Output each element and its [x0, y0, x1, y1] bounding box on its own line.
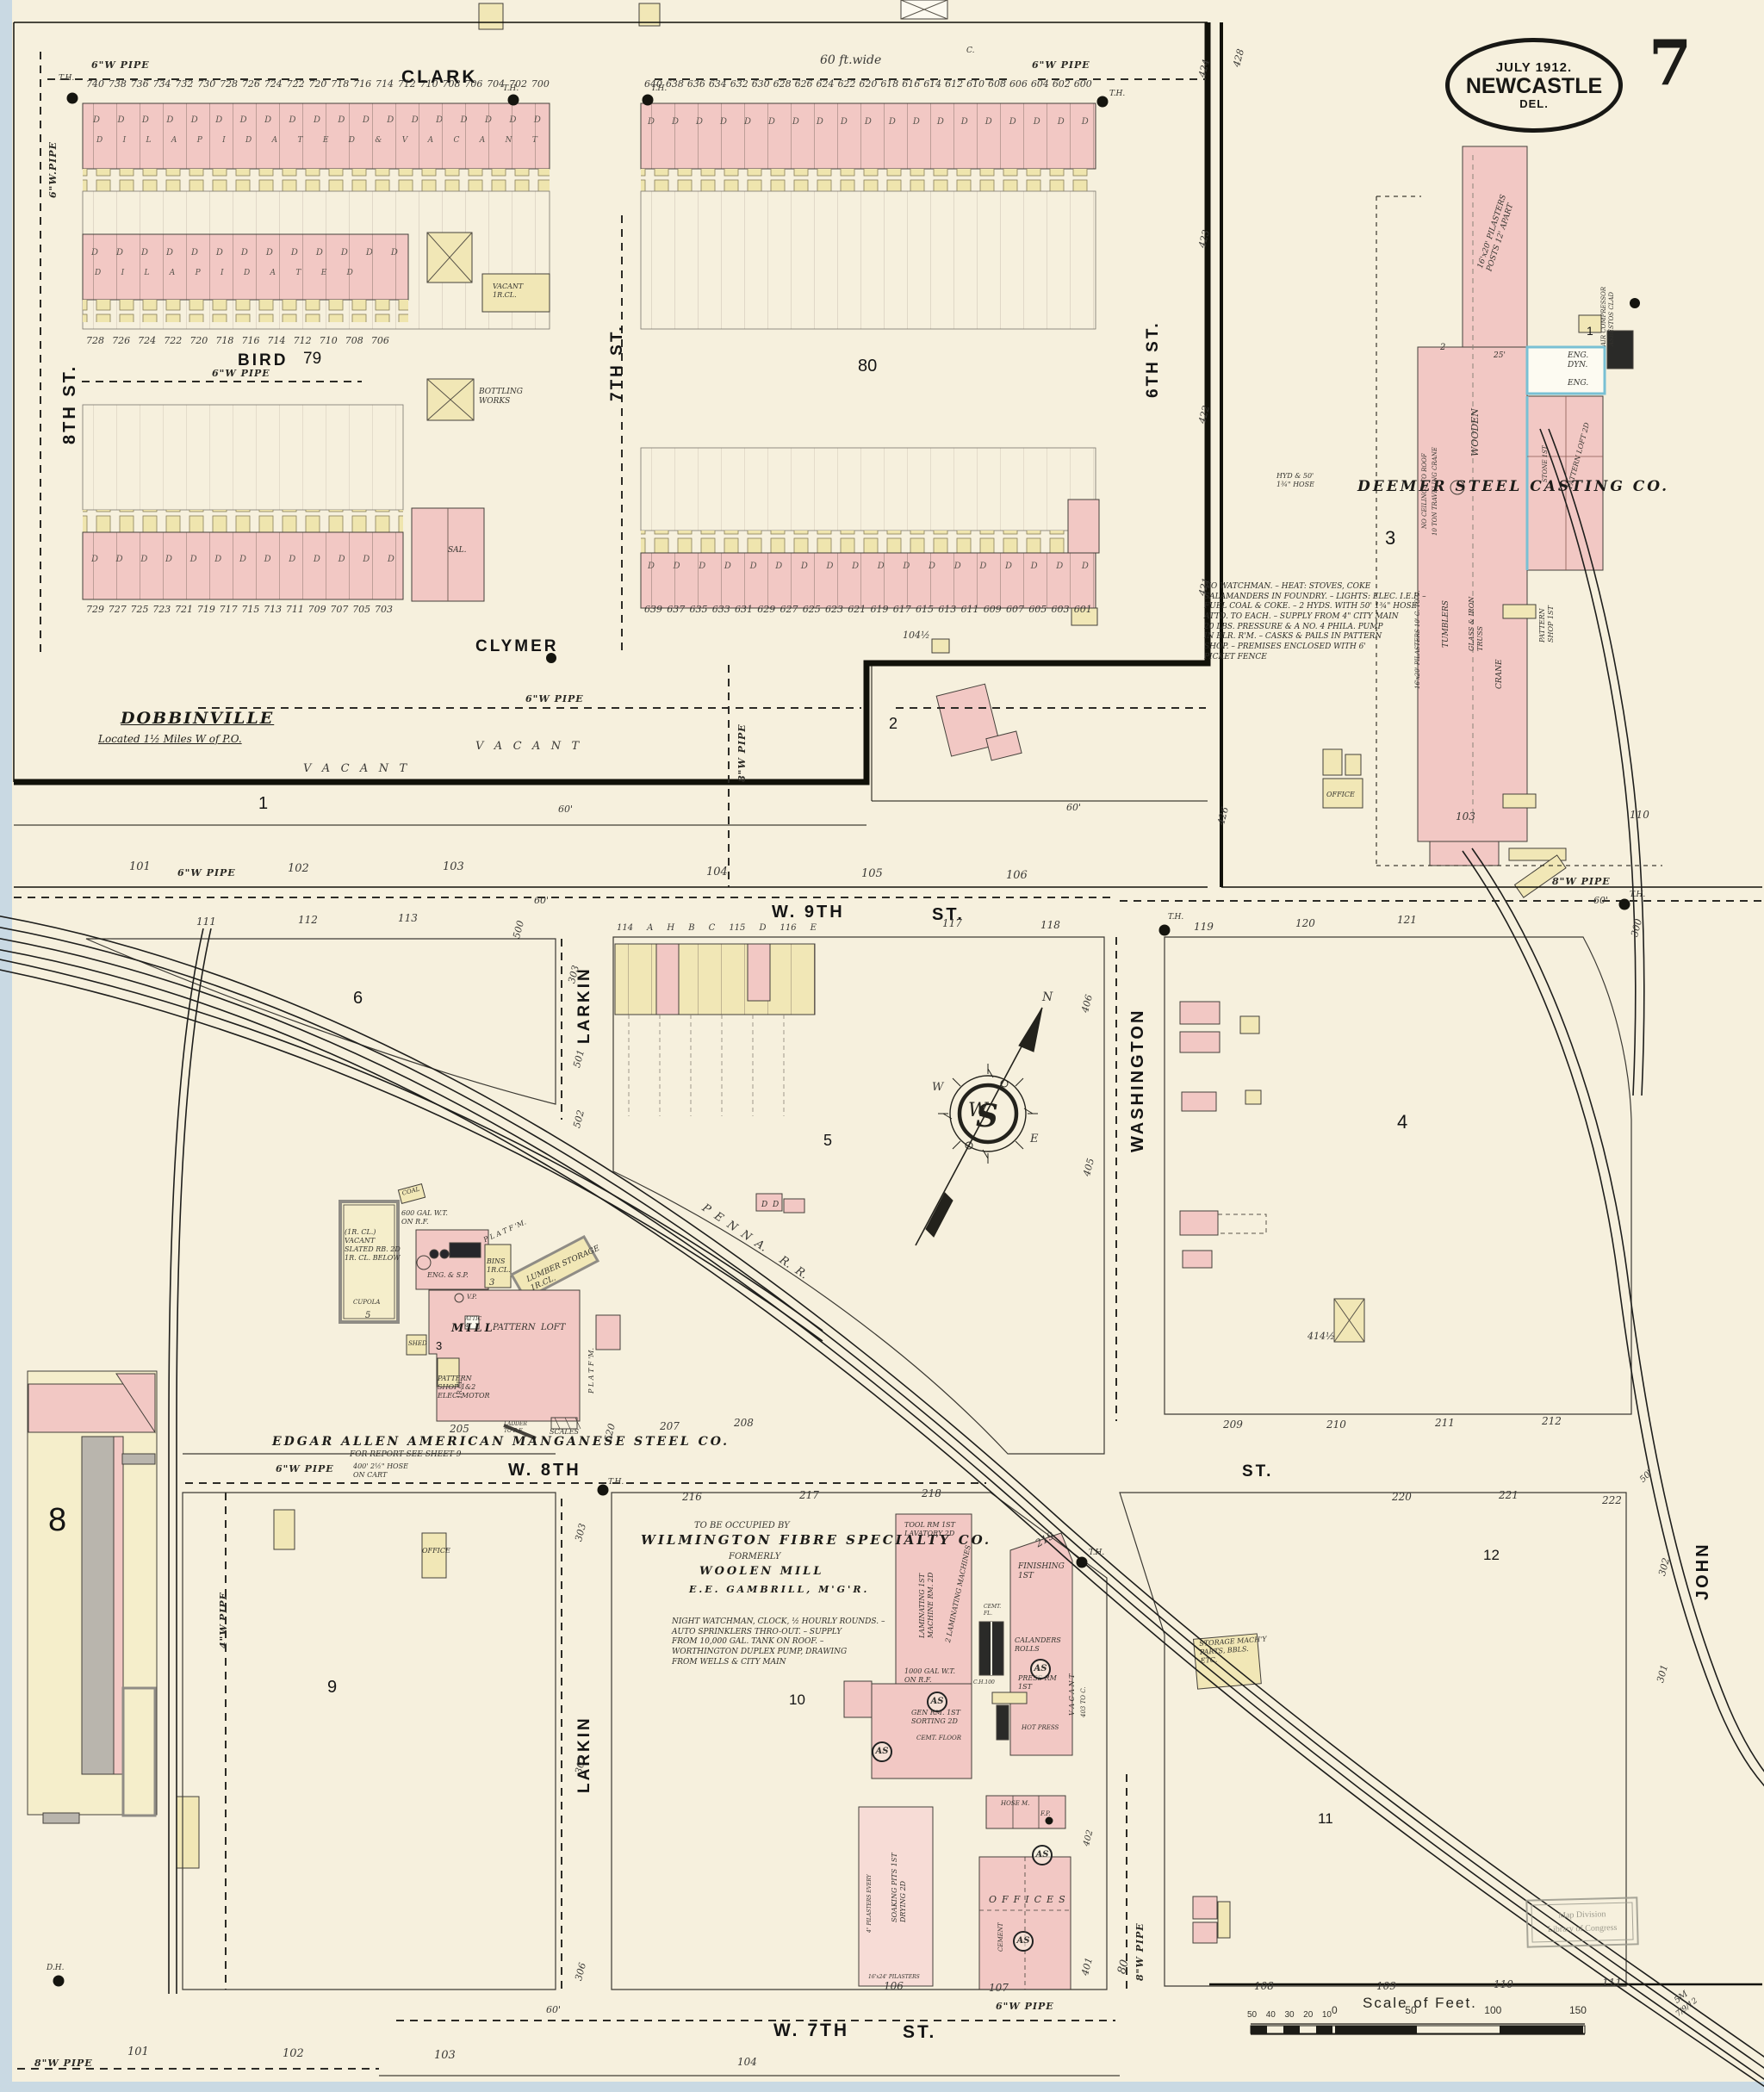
lot-number: A: [170, 269, 176, 277]
lot-number: 601: [1074, 605, 1092, 616]
lot-number: 629: [757, 605, 775, 616]
map-label: OFFICE: [1326, 791, 1355, 799]
lot-number: 726: [112, 336, 130, 347]
auto-sprinkler-badge: AS: [1032, 1845, 1053, 1865]
map-label: 400' 2½" HOSE ON CART: [353, 1462, 408, 1480]
lot-number: D: [817, 117, 823, 127]
street-w7th: W. 7TH: [773, 2021, 849, 2041]
label-layer: CLARK60 ft.wideBIRD7980CLYMER8TH ST.7TH …: [0, 0, 1764, 2092]
lot-number: 738: [109, 79, 127, 90]
lot-number: 50: [1405, 2005, 1416, 2017]
lot-number: D: [140, 555, 147, 565]
lot-number: D: [316, 248, 323, 258]
map-label: 101: [127, 2046, 149, 2059]
lot-number: D: [240, 115, 247, 126]
auto-sprinkler-badge: AS: [872, 1741, 892, 1762]
lot-number: E: [321, 269, 327, 277]
map-label: P L A T F 'M.: [482, 1218, 527, 1245]
house-numbers-bird-north: 728726724722720718716714712710708706: [86, 336, 389, 347]
lot-number: 617: [893, 605, 911, 616]
map-label: 111: [196, 916, 216, 928]
lot-number: D: [929, 562, 935, 572]
map-label: PATTERN SHOP 1ST: [1538, 605, 1556, 642]
map-label: 220: [1392, 1492, 1412, 1504]
lot-number: 626: [795, 79, 813, 90]
map-label: 120: [1295, 918, 1315, 930]
lot-number: 621: [848, 605, 866, 616]
lot-number: 636: [687, 79, 705, 90]
lot-number: 604: [1031, 79, 1049, 90]
map-label: ST.: [903, 2022, 936, 2043]
lot-number: 638: [666, 79, 684, 90]
lot-number: D: [363, 555, 370, 565]
lot-number: 623: [825, 605, 843, 616]
lot-number: 627: [780, 605, 798, 616]
lot-number: D: [141, 248, 148, 258]
map-label: 402: [1082, 1829, 1096, 1847]
lot-number: D: [91, 248, 98, 258]
lot-number: 722: [287, 79, 305, 90]
map-label: NO CEILINGS TO ROOF: [1421, 453, 1429, 529]
lot-number: 40: [1266, 2010, 1276, 2021]
block-8: 8: [48, 1502, 66, 1540]
lot-number: D: [979, 562, 986, 572]
map-label: 110: [1630, 810, 1649, 822]
lot-number: D: [91, 555, 98, 565]
lot-number: D: [266, 248, 273, 258]
compass-w: W: [932, 1082, 943, 1095]
lot-number: 702: [509, 79, 527, 90]
map-label: LAMINATING 1ST MACHINE RM. 2D: [918, 1573, 935, 1638]
map-label: 221: [1499, 1490, 1519, 1502]
map-label: CUPOLA: [353, 1299, 380, 1307]
map-label: 8"W PIPE: [34, 2058, 93, 2070]
map-label: 426: [1216, 806, 1232, 827]
map-label: CEMENT: [997, 1922, 1005, 1952]
lot-number: 729: [86, 605, 104, 616]
lot-number: 606: [1009, 79, 1028, 90]
map-label: 106: [884, 1981, 904, 1993]
map-label: WOODEN: [1469, 408, 1481, 456]
lot-number: 616: [902, 79, 920, 90]
map-label: 106: [1006, 870, 1028, 883]
map-label: 5: [365, 1311, 370, 1322]
lot-number: D: [165, 555, 172, 565]
lot-number: D: [937, 117, 944, 127]
lot-number: D: [341, 248, 348, 258]
lot-number: I: [222, 136, 226, 145]
map-label: 205: [450, 1424, 469, 1436]
block-12: 12: [1483, 1547, 1500, 1564]
map-label: 60': [558, 804, 573, 816]
lot-number: 728: [220, 79, 238, 90]
lot-number: 720: [189, 336, 208, 347]
lot-number: D: [1058, 117, 1065, 127]
map-label: 60': [546, 2005, 561, 2016]
map-label: 4" PILASTERS EVERY: [866, 1874, 873, 1933]
house-numbers-bird-south: 7297277257237217197177157137117097077057…: [86, 605, 393, 616]
map-label: 101: [129, 861, 151, 874]
block-10: 10: [789, 1692, 805, 1709]
lot-number: D: [720, 117, 727, 127]
lot-number: 625: [803, 605, 821, 616]
map-label: 108: [1254, 1981, 1274, 1993]
map-label: 600 GAL W.T. ON R.F.: [401, 1209, 448, 1226]
lot-number: A: [428, 136, 434, 145]
street-washington: WASHINGTON: [1128, 1009, 1148, 1152]
lot-number: 613: [938, 605, 956, 616]
lot-number: 600: [1074, 79, 1092, 90]
lot-number: D: [166, 115, 173, 126]
lot-number: 719: [197, 605, 215, 616]
lot-number: D: [190, 555, 197, 565]
lot-number: 710: [420, 79, 438, 90]
map-label: 6"W PIPE: [276, 1464, 334, 1475]
map-label: F.P.: [1040, 1810, 1051, 1818]
map-label: 8"W PIPE: [737, 723, 748, 782]
map-label: 501: [572, 1049, 587, 1070]
map-label: 60 ft.wide: [820, 53, 881, 67]
lot-number: D: [775, 562, 782, 572]
lot-number: 614: [923, 79, 941, 90]
house-numbers-clark-west: 7407387367347327307287267247227207187167…: [86, 79, 550, 90]
map-label: 306: [574, 1962, 589, 1983]
map-label: HYD & 50' 1¾" HOSE: [1276, 472, 1314, 489]
map-label: CEMT. FL.: [984, 1604, 1001, 1617]
lot-number: D: [264, 115, 271, 126]
map-label: C.: [966, 47, 974, 56]
map-label: 403 TO C.: [1080, 1686, 1088, 1717]
lot-number: 700: [531, 79, 550, 90]
lot-number: 607: [1006, 605, 1024, 616]
street-w9th: W. 9TH: [772, 903, 845, 922]
lot-number: 633: [712, 605, 730, 616]
house-numbers-clark-east: 6406386366346326306286266246226206186166…: [644, 79, 1092, 90]
lot-number: 632: [730, 79, 748, 90]
lot-number: 726: [242, 79, 260, 90]
lot-number: D: [347, 269, 353, 277]
map-label: 112: [298, 915, 318, 927]
lot-number: A: [171, 136, 177, 145]
map-label: 6"W PIPE: [525, 694, 584, 705]
map-label: ST.: [1242, 1462, 1273, 1481]
lot-number: D: [366, 248, 373, 258]
lot-number: D: [142, 115, 149, 126]
number-row: DDDDDDDDDDDDD: [91, 248, 398, 258]
map-label: 103: [1456, 811, 1475, 823]
map-label: 401: [1080, 1957, 1096, 1977]
map-label: 110: [1494, 1979, 1513, 1991]
lot-number: 718: [331, 79, 349, 90]
map-label: FINISHING 1ST: [1018, 1562, 1065, 1582]
lot-number: D: [1009, 117, 1016, 127]
inset-title: DOBBINVILLE: [121, 710, 274, 729]
map-label: T.H.: [1109, 90, 1125, 99]
lot-number: D: [672, 117, 679, 127]
map-label: V A C A N T: [1068, 1673, 1077, 1716]
lot-number: 620: [859, 79, 877, 90]
lot-number: 618: [880, 79, 898, 90]
lot-number: E: [811, 923, 817, 934]
lot-number: 707: [330, 605, 348, 616]
lot-number: D: [903, 562, 910, 572]
lot-number: 602: [1053, 79, 1071, 90]
lot-number: 10: [1322, 2010, 1332, 2021]
lot-number: I: [121, 269, 125, 277]
lot-number: D: [826, 562, 833, 572]
map-label: ENG.: [1568, 379, 1588, 388]
map-label: 118: [1040, 920, 1060, 932]
lot-number: D: [166, 248, 173, 258]
auto-sprinkler-badge: AS: [927, 1692, 947, 1712]
block-9: 9: [327, 1678, 337, 1698]
map-label: 301: [1655, 1664, 1671, 1685]
map-label: 10 TON TRAVELING CRANE: [1432, 447, 1439, 536]
map-label: 500: [512, 920, 527, 940]
lot-number: D: [291, 248, 298, 258]
map-label: COAL: [401, 1186, 420, 1198]
map-label: 105: [861, 868, 883, 881]
lot-number: T: [295, 269, 301, 277]
map-label: SAL.: [448, 546, 467, 556]
map-label: GLASS & IRON TRUSS: [1468, 597, 1485, 651]
lot-number: 724: [138, 336, 156, 347]
lot-number: D: [391, 248, 398, 258]
lot-number: 704: [487, 79, 505, 90]
lot-number: 622: [837, 79, 855, 90]
house-numbers-clymer: 6396376356336316296276256236216196176156…: [644, 605, 1092, 616]
map-label: 1R.CL.: [457, 1378, 464, 1399]
lot-number: 619: [871, 605, 889, 616]
lot-number: 50: [1247, 2010, 1257, 2021]
lot-number: 615: [916, 605, 934, 616]
lot-number: D: [1056, 562, 1063, 572]
map-label: D D: [761, 1201, 779, 1210]
map-label: 2: [1440, 343, 1445, 354]
lot-number: D: [339, 555, 345, 565]
map-label: 109: [1376, 1981, 1396, 1993]
map-label: CEMT. FLOOR: [916, 1735, 961, 1742]
lot-number: &: [375, 136, 382, 145]
lot-number: 114: [617, 923, 633, 934]
map-label: ENG. DYN.: [1568, 351, 1588, 371]
block-3: 3: [1385, 527, 1395, 549]
lot-number: 712: [294, 336, 312, 347]
lot-number: 640: [644, 79, 662, 90]
lot-number: 730: [197, 79, 215, 90]
lot-number: D: [648, 117, 655, 127]
map-label: HOT PRESS: [1022, 1724, 1059, 1732]
lot-number: D: [338, 115, 345, 126]
map-label: FOR REPORT SEE SHEET 9: [350, 1450, 461, 1460]
map-label: C.H.100: [973, 1679, 995, 1686]
lot-number: 637: [667, 605, 685, 616]
map-label: OFFICE: [422, 1547, 450, 1555]
map-label: 424: [1197, 59, 1213, 79]
lot-number: 711: [286, 605, 304, 616]
lot-number: 713: [264, 605, 282, 616]
lot-number: D: [699, 562, 705, 572]
lot-number: D: [95, 269, 101, 277]
map-label: T.H.: [608, 1478, 624, 1487]
lot-number: A: [480, 136, 486, 145]
lot-number: D: [1005, 562, 1012, 572]
lot-number: 708: [443, 79, 461, 90]
map-label: 423: [1197, 229, 1213, 250]
lot-number: D: [215, 115, 222, 126]
lot-number: D: [116, 248, 123, 258]
map-label: ATTIC 4: [465, 1316, 481, 1329]
map-label: 60': [534, 896, 549, 907]
map-label: BINS 1R.CL.: [487, 1257, 511, 1275]
lot-number: D: [961, 117, 968, 127]
lot-number: 721: [175, 605, 193, 616]
map-label: V.P.: [467, 1294, 477, 1301]
map-label: 16'x20' PILASTERS 10' C. TO C.: [1414, 591, 1422, 689]
map-label: 107: [989, 1983, 1009, 1995]
lot-number: A: [272, 136, 278, 145]
storage-building-label: STORAGE MACH'Y PARTS, BBLS. ETC.: [1199, 1636, 1268, 1666]
street-john: JOHN: [1693, 1542, 1713, 1600]
lot-number: D: [93, 115, 100, 126]
map-label: 8"W PIPE: [1135, 1922, 1146, 1981]
lot-number: D: [744, 117, 751, 127]
map-label: OFFICES: [989, 1895, 1071, 1906]
map-label: 104½: [903, 630, 930, 642]
map-label: 211: [1435, 1418, 1455, 1430]
lot-number: N: [506, 136, 512, 145]
house-numbers-block5: 114AHBC115D116E: [617, 923, 817, 934]
map-label: TO BE OCCUPIED BY: [694, 1521, 790, 1532]
lot-number: 628: [773, 79, 792, 90]
lot-number: P: [197, 136, 202, 145]
map-label: CRANE: [1495, 659, 1505, 689]
lot-number: 624: [817, 79, 835, 90]
lot-number: D: [96, 136, 102, 145]
number-row: DDDDDDDDDDDDD: [91, 555, 394, 565]
auto-sprinkler-badge: AS: [1013, 1931, 1034, 1952]
map-label: 422: [1197, 405, 1213, 425]
lot-number: D: [485, 115, 492, 126]
lot-number: 732: [175, 79, 193, 90]
map-label: AIR COMPRESSOR ASBESTOS CLAD: [1600, 287, 1616, 346]
map-label: 4"W.PIPE: [219, 1592, 230, 1648]
block-11: 11: [1318, 1810, 1333, 1828]
lot-number: 634: [709, 79, 727, 90]
number-row: DDDDDDDDDDDDDDDDDDD: [648, 117, 1089, 127]
lot-number: 610: [966, 79, 984, 90]
map-label: 3: [436, 1340, 442, 1353]
lot-number: D: [214, 555, 221, 565]
lot-number: 718: [215, 336, 233, 347]
lot-number: D: [534, 115, 541, 126]
map-label: 216: [682, 1492, 702, 1504]
map-label: TUMBLERS: [1442, 600, 1451, 648]
map-label: 303: [574, 1523, 589, 1543]
lot-number: B: [688, 923, 694, 934]
lot-number: L: [144, 269, 149, 277]
number-row: DDDDDDDDDDDDDDDDDDD: [93, 115, 541, 126]
map-label: 80: [1116, 1959, 1133, 1976]
map-label: PATTERN LOFT: [493, 1323, 565, 1334]
street-8th: 8TH ST.: [60, 364, 80, 444]
map-label: CALANDERS ROLLS: [1015, 1636, 1061, 1654]
map-label: FORMERLY: [729, 1552, 780, 1563]
inset-subtitle: Located 1½ Miles W of P.O.: [98, 734, 242, 746]
lot-number: 639: [644, 605, 662, 616]
map-label: VACANT 1R.CL.: [493, 282, 523, 300]
lot-number: 725: [131, 605, 149, 616]
lot-number: 100: [1484, 2005, 1501, 2017]
lot-number: 30: [1284, 2010, 1294, 2021]
map-label: 6"W PIPE: [1032, 60, 1090, 71]
lot-number: T: [532, 136, 537, 145]
map-label: 50': [1638, 1468, 1655, 1485]
map-label: 111: [1602, 1977, 1622, 1990]
lot-number: D: [289, 555, 295, 565]
lot-number: T: [297, 136, 302, 145]
map-label: V A C A N T: [475, 741, 579, 754]
auto-sprinkler-badge: AS: [1030, 1659, 1051, 1679]
lot-number: 716: [241, 336, 259, 347]
lot-number: D: [696, 117, 703, 127]
block-5: 5: [823, 1132, 832, 1150]
map-label: P L A T F 'M.: [587, 1348, 596, 1394]
lot-number: D: [1082, 562, 1089, 572]
number-row: DDDDDDDDDDDDDDDDDD: [648, 562, 1089, 572]
map-label: 6"W PIPE: [996, 2002, 1054, 2013]
lot-number: 703: [375, 605, 393, 616]
lot-number: D: [852, 562, 859, 572]
lot-number: D: [191, 115, 198, 126]
lot-number: D: [792, 117, 799, 127]
lot-number: 715: [241, 605, 259, 616]
map-label: T.H.: [1630, 891, 1645, 900]
lot-number: D: [674, 562, 680, 572]
map-label: 1: [1587, 324, 1593, 338]
map-label: TOOL RM 1ST LAVATORY 2D: [904, 1521, 955, 1538]
lot-number: D: [216, 248, 223, 258]
block-6: 6: [353, 989, 363, 1009]
number-row: DILAPIDATED&VACANT: [96, 136, 537, 145]
map-label: STONE 1ST: [1542, 445, 1550, 482]
map-label: 3: [489, 1278, 494, 1289]
lot-number: 728: [86, 336, 104, 347]
lot-number: D: [245, 136, 252, 145]
company-deemer: DEEMER STEEL CASTING CO.: [1357, 479, 1669, 496]
lot-number: 635: [690, 605, 708, 616]
lot-number: 740: [86, 79, 104, 90]
map-label: 102: [283, 2048, 304, 2061]
lot-number: D: [241, 248, 248, 258]
lot-number: D: [314, 555, 320, 565]
lot-number: 608: [988, 79, 1006, 90]
lot-number: 722: [164, 336, 182, 347]
lot-number: 710: [320, 336, 338, 347]
map-label: 6"W PIPE: [91, 60, 150, 71]
lot-number: L: [146, 136, 152, 145]
block-80: 80: [858, 357, 877, 376]
wilmington-notes: NIGHT WATCHMAN, CLOCK, ½ HOURLY ROUNDS. …: [672, 1617, 885, 1667]
lot-number: 716: [353, 79, 371, 90]
map-label: 119: [1194, 922, 1214, 934]
lot-number: 605: [1028, 605, 1047, 616]
map-label: 428: [1232, 48, 1247, 69]
map-label: 6"W PIPE: [212, 369, 270, 380]
map-label: 113: [398, 913, 418, 925]
map-label: 103: [434, 2050, 456, 2063]
lot-number: D: [436, 115, 443, 126]
